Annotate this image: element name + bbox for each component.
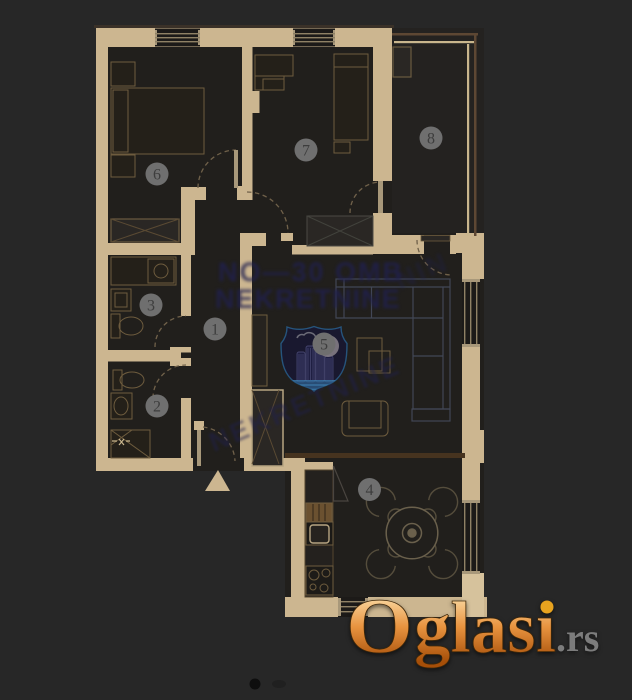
svg-text:NO—30 OMB: NO—30 OMB [218,257,404,287]
svg-text:4: 4 [366,482,374,499]
svg-text:3: 3 [147,298,155,315]
svg-text:glasi: glasi [414,587,556,668]
svg-text:2: 2 [153,399,161,416]
svg-text:5: 5 [320,337,328,354]
svg-text:NEKRETNINE: NEKRETNINE [215,284,401,314]
svg-text:1: 1 [211,322,219,339]
svg-text:8: 8 [427,131,435,148]
svg-text:.rs: .rs [556,615,599,660]
svg-text:O: O [346,582,413,669]
svg-text:6: 6 [153,167,161,184]
svg-text:7: 7 [302,143,310,160]
